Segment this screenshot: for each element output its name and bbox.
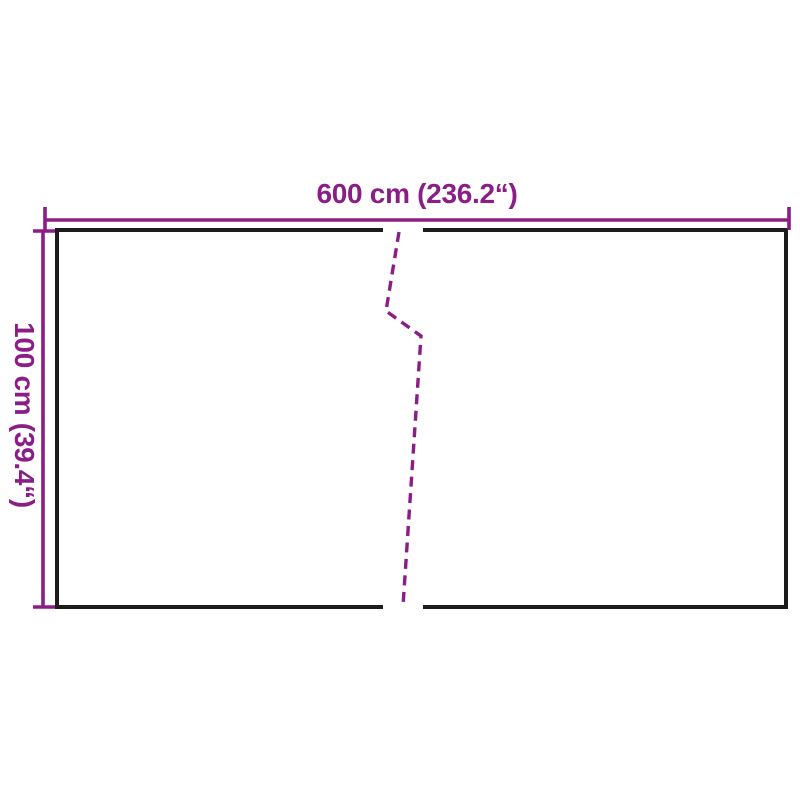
- width-dimension-line: [45, 207, 789, 230]
- diagram-canvas: [0, 0, 800, 800]
- break-line: [386, 232, 421, 606]
- width-dimension-label: 600 cm (236.2“): [317, 179, 518, 209]
- panel-outline: [55, 228, 788, 609]
- height-dimension-label: 100 cm (39.4“): [9, 322, 39, 508]
- product-dimension-diagram: 600 cm (236.2“) 100 cm (39.4“): [0, 0, 800, 800]
